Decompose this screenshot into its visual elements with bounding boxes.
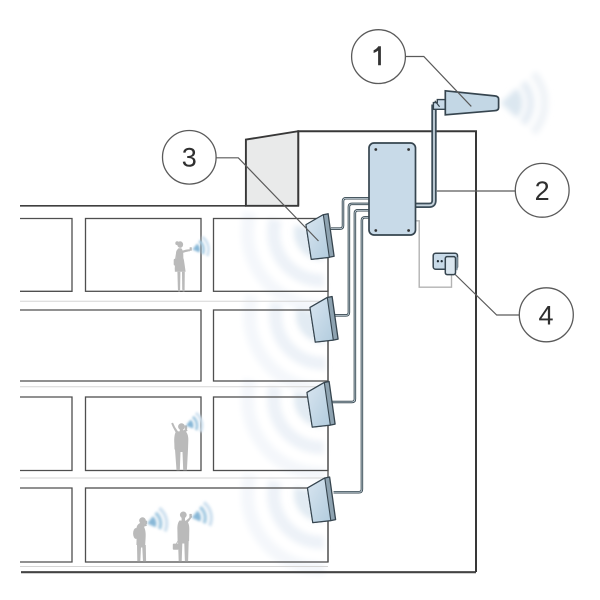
svg-text:4: 4 <box>538 300 553 330</box>
svg-text:3: 3 <box>182 143 197 173</box>
svg-text:2: 2 <box>535 176 550 206</box>
